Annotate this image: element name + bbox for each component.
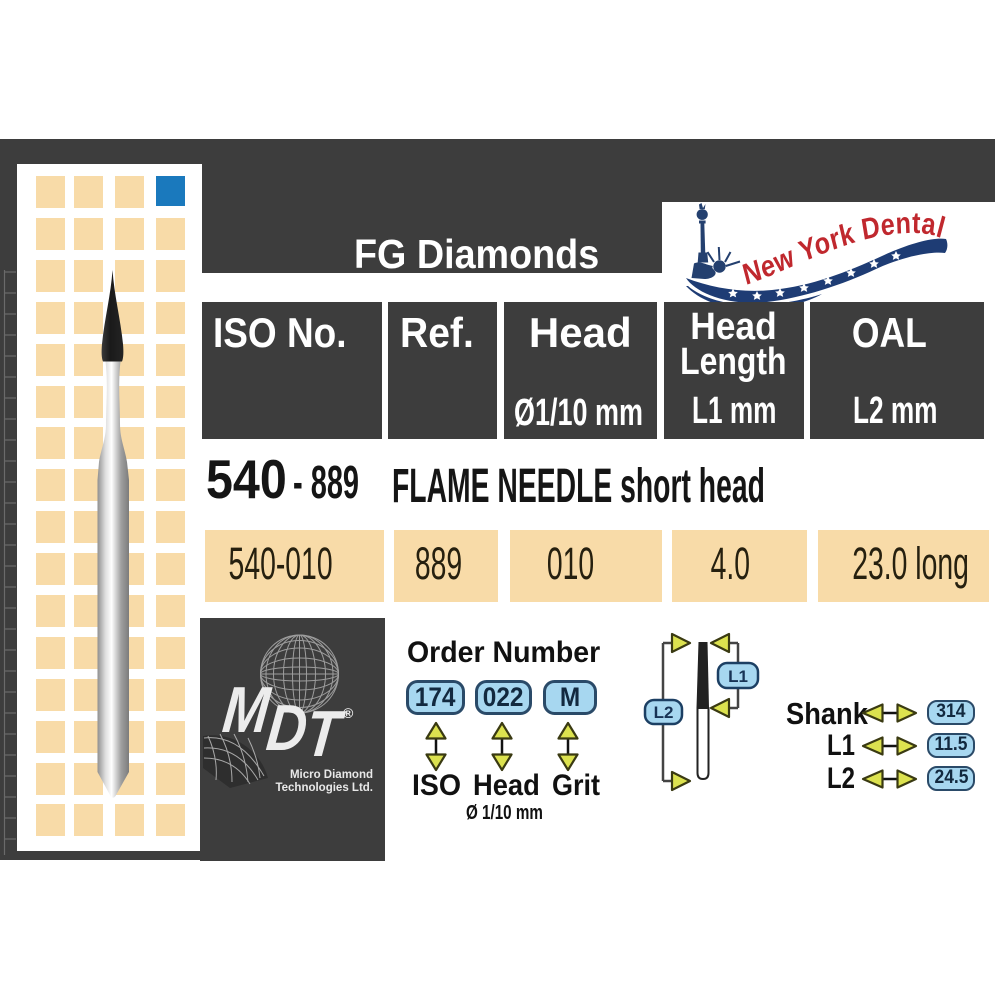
svg-text:®: ® — [343, 705, 354, 721]
svg-text:T: T — [302, 697, 348, 770]
svg-text:Technologies Ltd.: Technologies Ltd. — [275, 782, 373, 794]
svg-text:L2: L2 — [654, 703, 674, 722]
svg-text:Micro Diamond: Micro Diamond — [290, 769, 373, 781]
svg-text:L1: L1 — [728, 667, 748, 686]
